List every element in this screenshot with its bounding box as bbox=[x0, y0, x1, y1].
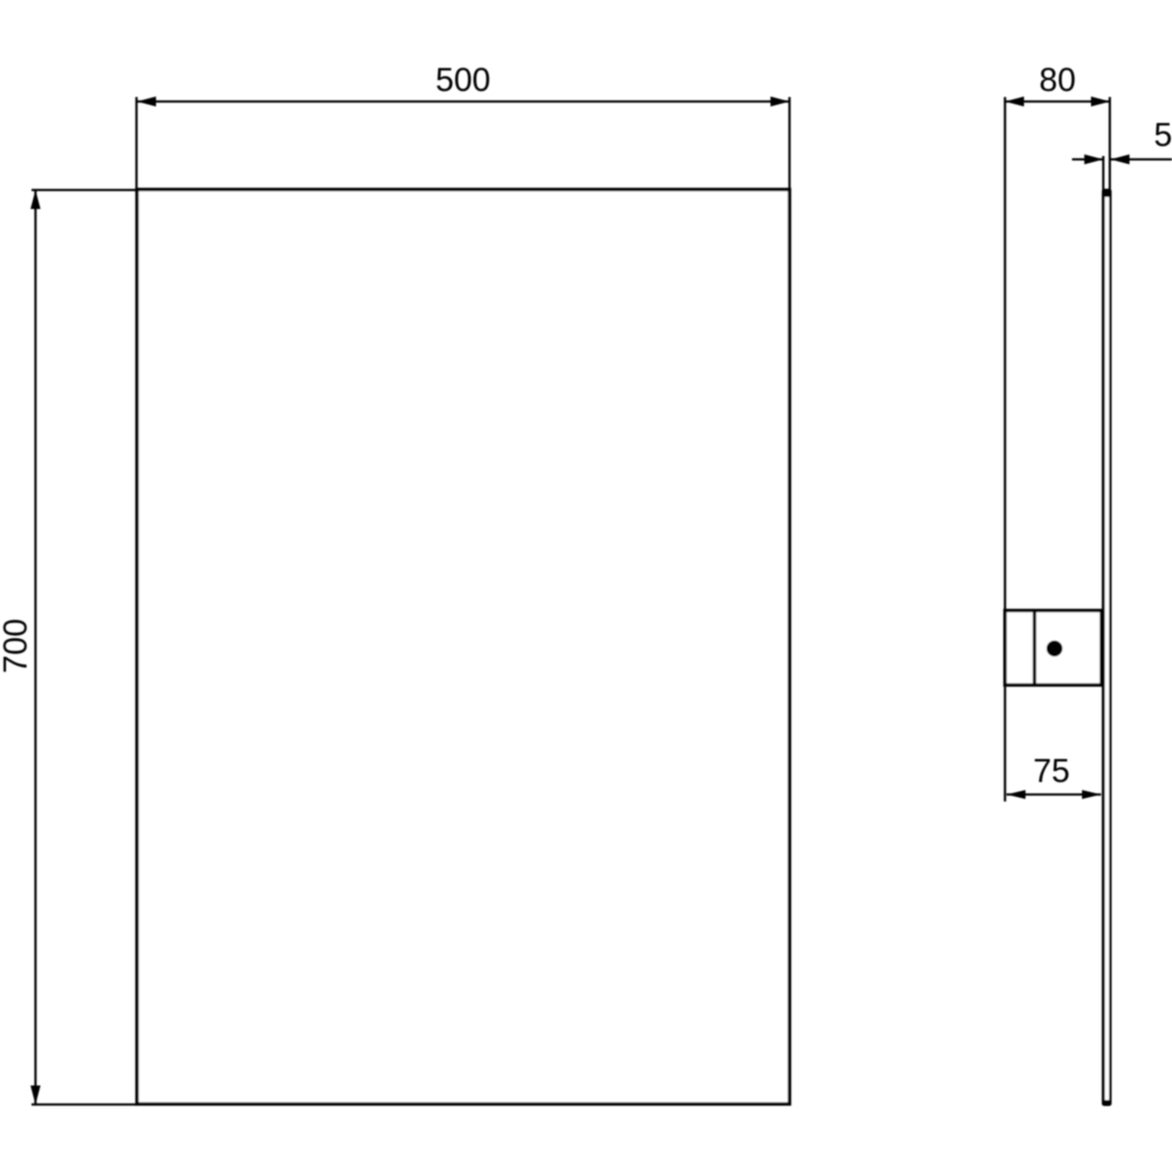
svg-text:500: 500 bbox=[435, 61, 490, 98]
svg-text:5: 5 bbox=[1154, 116, 1172, 153]
svg-text:80: 80 bbox=[1039, 61, 1076, 98]
svg-text:700: 700 bbox=[0, 618, 34, 673]
svg-text:75: 75 bbox=[1033, 752, 1070, 789]
